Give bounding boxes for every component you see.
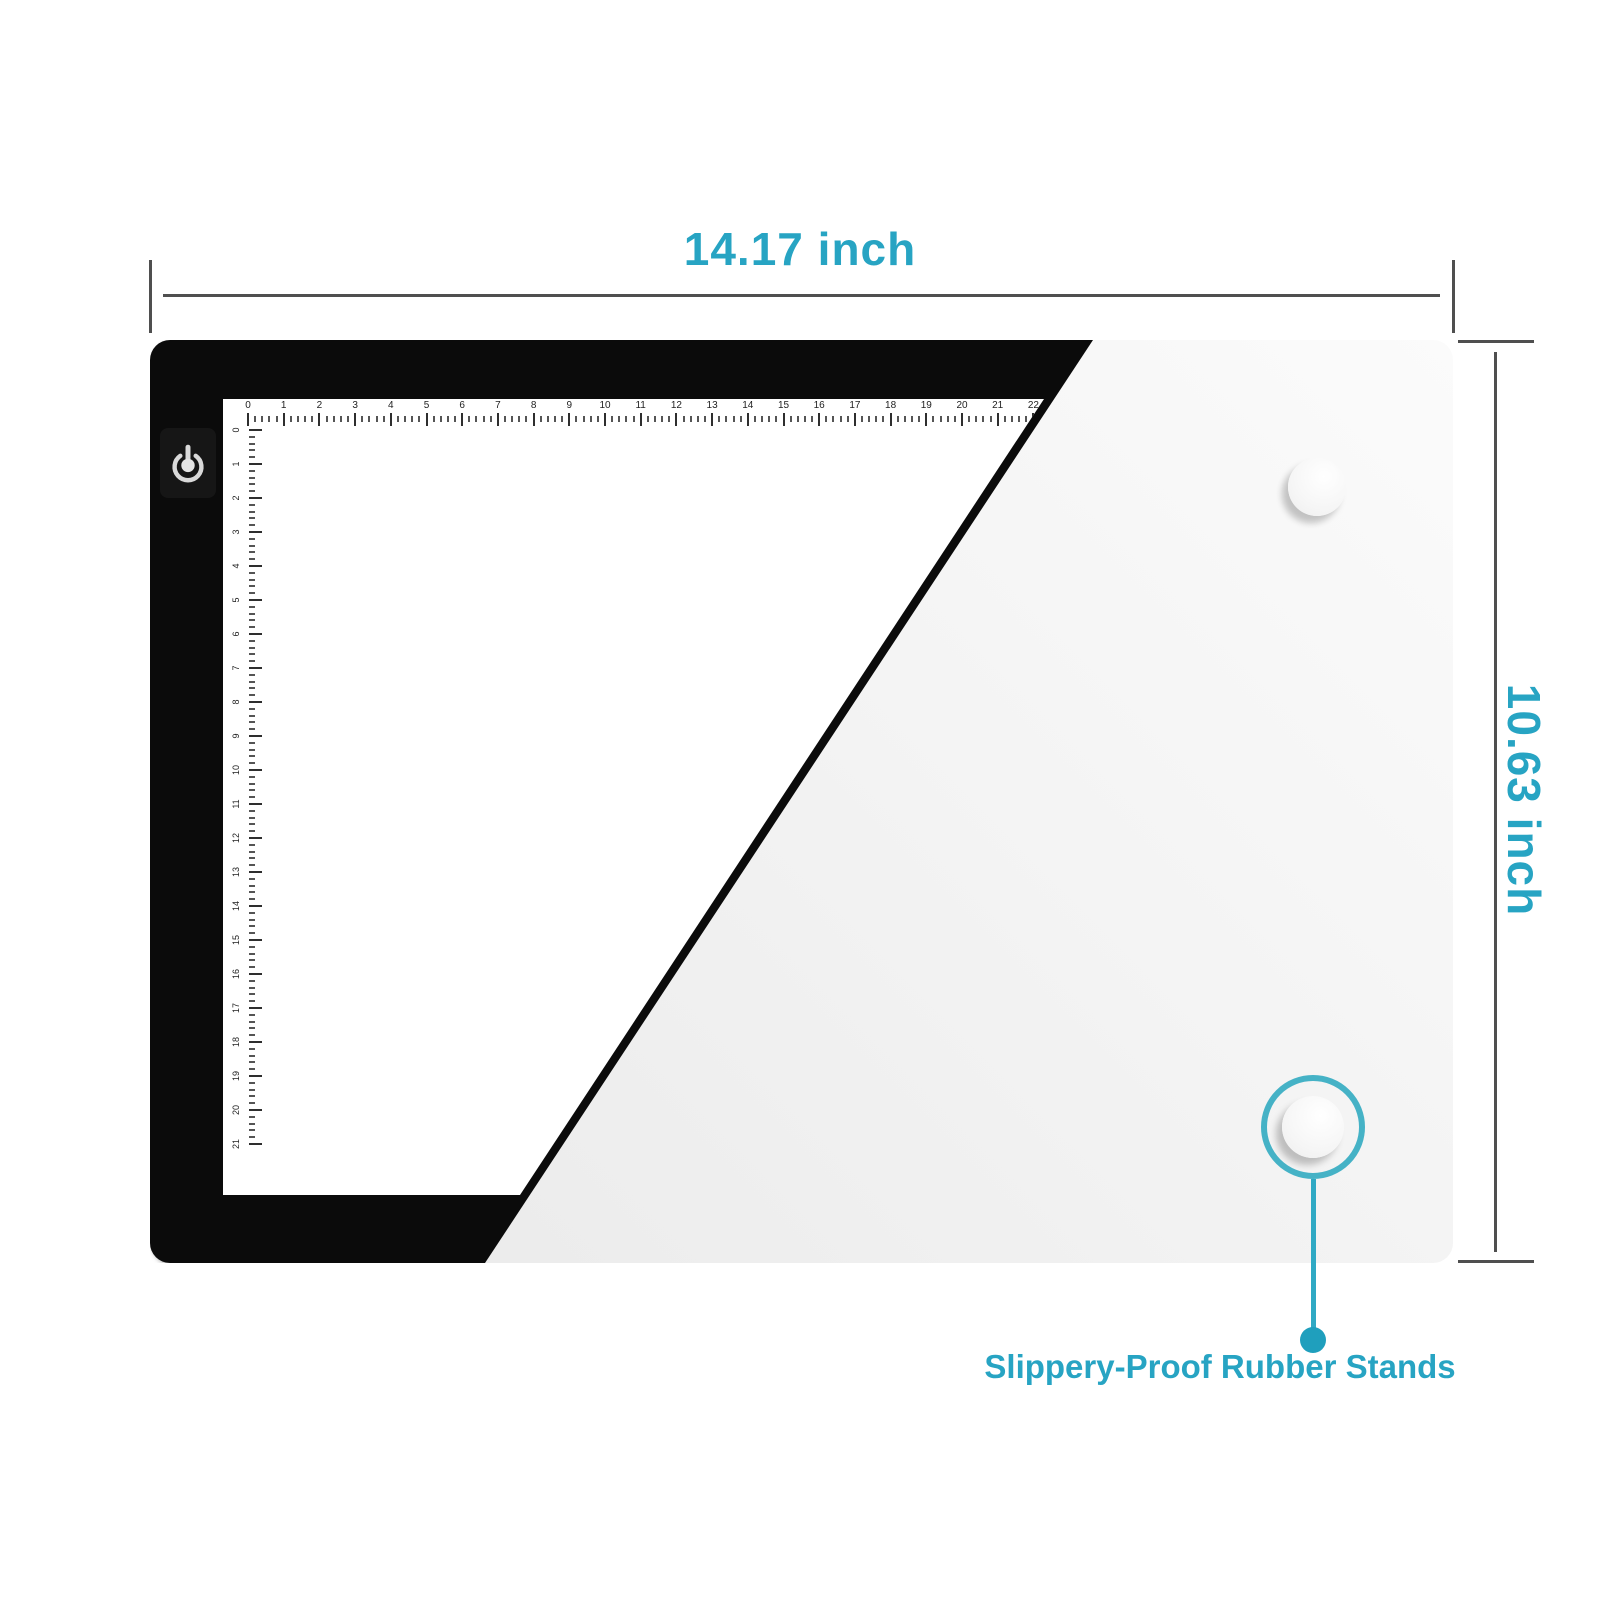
ruler-tick [249, 694, 255, 696]
ruler-tick [249, 939, 262, 941]
ruler-tick [249, 667, 262, 669]
ruler-tick [249, 742, 255, 744]
ruler-tick [1025, 416, 1027, 422]
ruler-tick [954, 416, 956, 422]
ruler-tick [249, 1095, 255, 1097]
ruler-tick [249, 429, 262, 431]
ruler-tick [249, 966, 255, 968]
ruler-tick [297, 416, 299, 422]
ruler-tick [249, 1007, 262, 1009]
ruler-tick [811, 416, 813, 422]
ruler-tick [249, 517, 255, 519]
ruler-tick [768, 416, 770, 422]
ruler-tick [647, 416, 649, 422]
ruler-tick [249, 987, 255, 989]
stand-callout-line [1311, 1179, 1316, 1329]
ruler-tick [249, 640, 255, 642]
ruler-number: 10 [599, 400, 610, 411]
ruler-tick [249, 1075, 262, 1077]
ruler-number: 18 [885, 400, 896, 411]
ruler-tick [1032, 413, 1034, 426]
ruler-tick [497, 413, 499, 426]
ruler-tick [249, 579, 255, 581]
ruler-tick [249, 470, 255, 472]
ruler-tick [404, 416, 406, 422]
ruler-tick [249, 864, 255, 866]
ruler-tick [249, 973, 262, 975]
ruler-tick [249, 980, 255, 982]
rubber-stand-top-right [1288, 458, 1346, 516]
ruler-tick [249, 1021, 255, 1023]
ruler-tick [249, 776, 255, 778]
ruler-tick [249, 905, 262, 907]
ruler-tick [249, 1123, 255, 1125]
ruler-tick [249, 762, 255, 764]
ruler-tick [249, 1027, 255, 1029]
ruler-tick [340, 416, 342, 422]
ruler-tick [604, 413, 606, 426]
ruler-tick [249, 565, 262, 567]
ruler-tick [249, 1068, 255, 1070]
ruler-tick [525, 416, 527, 422]
ruler-tick [249, 953, 255, 955]
ruler-tick [611, 416, 613, 422]
ruler-tick [304, 416, 306, 422]
ruler-tick [925, 413, 927, 426]
ruler-number: 18 [231, 1037, 241, 1047]
ruler-tick [249, 728, 255, 730]
ruler-tick [718, 416, 720, 422]
ruler-tick [783, 413, 785, 426]
ruler-tick [326, 416, 328, 422]
ruler-tick [468, 416, 470, 422]
width-dimension-label: 14.17 inch [0, 222, 1600, 276]
ruler-tick [249, 545, 255, 547]
ruler-number: 21 [231, 1139, 241, 1149]
ruler-tick [249, 456, 255, 458]
ruler-tick [1004, 416, 1006, 422]
ruler-number: 9 [231, 733, 241, 738]
ruler-tick [625, 416, 627, 422]
ruler-tick [249, 844, 255, 846]
ruler-number: 17 [231, 1003, 241, 1013]
ruler-tick [249, 925, 255, 927]
ruler-tick [249, 531, 262, 533]
ruler-tick [249, 749, 255, 751]
ruler-tick [840, 416, 842, 422]
ruler-tick [249, 1082, 255, 1084]
ruler-tick [433, 416, 435, 422]
ruler-tick [761, 416, 763, 422]
ruler-number: 6 [231, 631, 241, 636]
ruler-tick [249, 932, 255, 934]
ruler-tick [775, 416, 777, 422]
ruler-tick [249, 878, 255, 880]
ruler-tick [249, 1102, 255, 1104]
ruler-tick [249, 701, 262, 703]
width-dimension-tick-left [149, 260, 152, 333]
ruler-tick [249, 857, 255, 859]
ruler-number: 16 [231, 969, 241, 979]
ruler-tick [249, 912, 255, 914]
ruler-number: 21 [992, 400, 1003, 411]
ruler-number: 15 [231, 935, 241, 945]
ruler-tick [249, 885, 255, 887]
ruler-tick [361, 416, 363, 422]
ruler-tick [249, 449, 255, 451]
ruler-tick [711, 413, 713, 426]
ruler-tick [249, 830, 255, 832]
ruler-number: 9 [567, 400, 573, 411]
ruler-number: 15 [778, 400, 789, 411]
ruler-tick [354, 413, 356, 426]
ruler-tick [249, 592, 255, 594]
ruler-tick [504, 416, 506, 422]
ruler-number: 5 [424, 400, 430, 411]
ruler-tick [590, 416, 592, 422]
ruler-tick [249, 769, 262, 771]
ruler-number: 2 [317, 400, 323, 411]
ruler-tick [249, 755, 255, 757]
ruler-tick [249, 715, 255, 717]
ruler-tick [249, 558, 255, 560]
rubber-stands-label: Slippery-Proof Rubber Stands [980, 1348, 1460, 1386]
ruler-number: 7 [495, 400, 501, 411]
ruler-tick [249, 687, 255, 689]
ruler-tick [982, 416, 984, 422]
ruler-tick [368, 416, 370, 422]
ruler-number: 1 [231, 461, 241, 466]
ruler-tick [533, 413, 535, 426]
ruler-tick [490, 416, 492, 422]
width-dimension-line [163, 294, 1440, 297]
ruler-number: 3 [352, 400, 358, 411]
ruler-left: 0123456789101112131415161718192021 [223, 399, 269, 1195]
ruler-number: 14 [231, 901, 241, 911]
ruler-tick [249, 871, 262, 873]
ruler-tick [1011, 416, 1013, 422]
ruler-tick [249, 837, 262, 839]
ruler-tick [968, 416, 970, 422]
ruler-tick [1018, 416, 1020, 422]
ruler-number: 12 [671, 400, 682, 411]
ruler-number: 3 [231, 529, 241, 534]
ruler-tick [640, 413, 642, 426]
ruler-number: 13 [707, 400, 718, 411]
ruler-tick [249, 599, 262, 601]
ruler-tick [426, 413, 428, 426]
ruler-tick [411, 416, 413, 422]
ruler-number: 4 [388, 400, 394, 411]
ruler-tick [249, 647, 255, 649]
ruler-tick [249, 1116, 255, 1118]
ruler-number: 1 [281, 400, 287, 411]
ruler-tick [249, 619, 255, 621]
ruler-tick [961, 413, 963, 426]
ruler-tick [618, 416, 620, 422]
ruler-tick [975, 416, 977, 422]
ruler-tick [790, 416, 792, 422]
ruler-tick [290, 416, 292, 422]
ruler-tick [311, 416, 313, 422]
ruler-tick [249, 653, 255, 655]
ruler-tick [249, 538, 255, 540]
ruler-tick [825, 416, 827, 422]
ruler-number: 8 [231, 699, 241, 704]
ruler-number: 13 [231, 867, 241, 877]
ruler-tick [697, 416, 699, 422]
ruler-number: 20 [231, 1105, 241, 1115]
ruler-tick [511, 416, 513, 422]
ruler-tick [249, 585, 255, 587]
ruler-tick [868, 416, 870, 422]
ruler-tick [540, 416, 542, 422]
ruler-tick [249, 626, 255, 628]
product-diagram: 14.17 inch 10.63 inch 012345678910111213… [0, 0, 1600, 1600]
ruler-tick [440, 416, 442, 422]
ruler-tick [249, 613, 255, 615]
ruler-number: 5 [231, 597, 241, 602]
ruler-tick [418, 416, 420, 422]
ruler-number: 19 [921, 400, 932, 411]
ruler-tick [249, 524, 255, 526]
ruler-tick [861, 416, 863, 422]
ruler-tick [447, 416, 449, 422]
ruler-tick [249, 823, 255, 825]
ruler-number: 11 [231, 799, 241, 808]
ruler-top: 012345678910111213141516171819202122 [223, 399, 1055, 431]
ruler-tick [668, 416, 670, 422]
ruler-tick [554, 416, 556, 422]
ruler-tick [904, 416, 906, 422]
ruler-tick [249, 1143, 262, 1145]
ruler-tick [249, 817, 255, 819]
ruler-tick [249, 810, 255, 812]
ruler-tick [249, 891, 255, 893]
ruler-tick [733, 416, 735, 422]
ruler-number: 10 [231, 765, 241, 775]
ruler-tick [875, 416, 877, 422]
ruler-tick [249, 1109, 262, 1111]
ruler-tick [583, 416, 585, 422]
ruler-tick [249, 606, 255, 608]
ruler-tick [249, 443, 255, 445]
ruler-number: 12 [231, 833, 241, 843]
ruler-tick [249, 721, 255, 723]
ruler-tick [249, 504, 255, 506]
ruler-tick [249, 789, 255, 791]
ruler-tick [918, 416, 920, 422]
ruler-tick [249, 1129, 255, 1131]
ruler-tick [818, 413, 820, 426]
ruler-tick [704, 416, 706, 422]
ruler-tick [376, 416, 378, 422]
ruler-tick [633, 416, 635, 422]
ruler-tick [661, 416, 663, 422]
ruler-tick [249, 919, 255, 921]
ruler-tick [249, 436, 255, 438]
ruler-number: 19 [231, 1071, 241, 1081]
ruler-tick [249, 1055, 255, 1057]
ruler-number: 4 [231, 563, 241, 568]
ruler-tick [249, 1048, 255, 1050]
ruler-tick [568, 413, 570, 426]
ruler-tick [654, 416, 656, 422]
ruler-tick [754, 416, 756, 422]
height-dimension-tick-bottom [1458, 1260, 1534, 1263]
height-dimension-tick-top [1458, 340, 1534, 343]
height-dimension-line [1494, 352, 1497, 1252]
ruler-tick [561, 416, 563, 422]
ruler-tick [249, 1034, 255, 1036]
power-icon-glyph [165, 440, 211, 486]
ruler-tick [690, 416, 692, 422]
ruler-tick [940, 416, 942, 422]
ruler-number: 17 [849, 400, 860, 411]
ruler-tick [249, 959, 255, 961]
ruler-tick [249, 477, 255, 479]
ruler-tick [932, 416, 934, 422]
ruler-tick [747, 413, 749, 426]
ruler-tick [854, 413, 856, 426]
ruler-tick [249, 483, 255, 485]
ruler-tick [804, 416, 806, 422]
ruler-number: 16 [814, 400, 825, 411]
ruler-tick [347, 416, 349, 422]
height-dimension-label: 10.63 inch [1497, 684, 1551, 916]
ruler-number: 7 [231, 665, 241, 670]
ruler-tick [547, 416, 549, 422]
ruler-tick [475, 416, 477, 422]
ruler-tick [249, 1061, 255, 1063]
ruler-tick [249, 681, 255, 683]
ruler-tick [249, 490, 255, 492]
ruler-number: 6 [459, 400, 465, 411]
ruler-tick [249, 572, 255, 574]
ruler-tick [575, 416, 577, 422]
ruler-tick [249, 1014, 255, 1016]
ruler-tick [847, 416, 849, 422]
ruler-tick [890, 413, 892, 426]
ruler-tick [249, 993, 255, 995]
ruler-tick [249, 796, 255, 798]
ruler-tick [249, 851, 255, 853]
ruler-tick [832, 416, 834, 422]
ruler-tick [333, 416, 335, 422]
ruler-tick [249, 1041, 262, 1043]
ruler-number: 22 [1028, 400, 1039, 411]
ruler-number: 14 [742, 400, 753, 411]
ruler-tick [997, 413, 999, 426]
ruler-number: 8 [531, 400, 537, 411]
ruler-tick [249, 660, 255, 662]
ruler-tick [383, 416, 385, 422]
ruler-tick [461, 413, 463, 426]
ruler-tick [249, 511, 255, 513]
ruler-tick [454, 416, 456, 422]
ruler-tick [483, 416, 485, 422]
ruler-number: 20 [956, 400, 967, 411]
ruler-tick [249, 946, 255, 948]
ruler-tick [249, 783, 255, 785]
ruler-tick [249, 497, 262, 499]
ruler-number: 2 [231, 495, 241, 500]
ruler-tick [897, 416, 899, 422]
ruler-tick [740, 416, 742, 422]
power-touch-icon [160, 428, 216, 498]
ruler-tick [318, 413, 320, 426]
ruler-tick [947, 416, 949, 422]
ruler-tick [249, 1136, 255, 1138]
ruler-tick [249, 633, 262, 635]
ruler-tick [725, 416, 727, 422]
ruler-tick [249, 735, 262, 737]
width-dimension-tick-right [1452, 260, 1455, 333]
ruler-tick [990, 416, 992, 422]
ruler-tick [249, 708, 255, 710]
ruler-tick [882, 416, 884, 422]
ruler-tick [249, 803, 262, 805]
ruler-tick [390, 413, 392, 426]
ruler-tick [597, 416, 599, 422]
ruler-tick [397, 416, 399, 422]
ruler-tick [683, 416, 685, 422]
ruler-tick [249, 1089, 255, 1091]
ruler-tick [249, 674, 255, 676]
ruler-number: 11 [635, 400, 645, 411]
ruler-tick [249, 463, 262, 465]
ruler-tick [797, 416, 799, 422]
ruler-tick [249, 1000, 255, 1002]
ruler-tick [675, 413, 677, 426]
ruler-tick [283, 413, 285, 426]
ruler-tick [249, 898, 255, 900]
ruler-tick [276, 416, 278, 422]
ruler-tick [518, 416, 520, 422]
ruler-number: 0 [231, 427, 241, 432]
stand-callout-circle [1261, 1075, 1365, 1179]
ruler-tick [911, 416, 913, 422]
ruler-tick [249, 551, 255, 553]
